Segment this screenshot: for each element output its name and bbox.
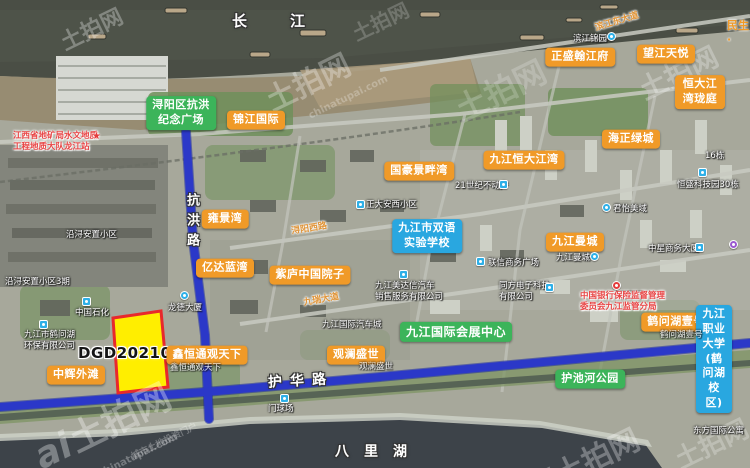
star-icon: ★	[92, 132, 101, 142]
poi-xinhengtong-small: 鑫恒通观天下	[170, 363, 221, 374]
poi-badge-huchihe-park: 护池河公园	[555, 370, 625, 389]
location-icon	[399, 270, 408, 279]
location-icon	[590, 252, 599, 261]
location-icon	[39, 320, 48, 329]
poi-mancheng-small: 九江曼城	[556, 253, 590, 264]
poi-junyi-meiyu: 君怡美域	[613, 204, 647, 215]
poi-yanxun-estate-3: 沿浔安置小区3期	[5, 277, 70, 288]
poi-guanlan-shengshi-small: 观澜盛世	[359, 362, 393, 373]
poi-badge-jiujiang-mancheng: 九江曼城	[546, 233, 604, 252]
poi-badge-yongjingwan: 雍景湾	[202, 210, 249, 229]
poi-longde-building: 龙德大厦	[168, 303, 202, 314]
gov-location-icon	[612, 281, 621, 290]
poi-zhongxing-business-tower: 中星商务大厦	[648, 244, 699, 255]
poi-dongfang-intl-apartment: 东方国际公寓	[693, 426, 744, 437]
poi-badge-yida-lanwan: 亿达蓝湾	[196, 259, 254, 278]
location-icon	[280, 394, 289, 403]
location-icon	[698, 168, 707, 177]
poi-hewenhu-yihao-small: 鹤问湖壹号	[660, 330, 703, 341]
poi-badge-zilu-china-courtyard: 紫庐中国院子	[270, 266, 351, 285]
poi-badge-kanghong-memorial-plaza: 浔阳区抗洪 纪念广场	[146, 96, 216, 130]
poi-badge-jiujiang-hengda-jiangwan: 九江恒大江湾	[484, 151, 565, 170]
location-icon	[607, 32, 616, 41]
poi-badge-xinhengtong-guantianxia: 鑫恒通观天下	[167, 346, 248, 365]
poi-badge-bilingual-school: 九江市双语 实验学校	[392, 219, 462, 253]
location-icon	[545, 283, 554, 292]
poi-badge-jinjiang-intl: 锦江国际	[227, 111, 285, 130]
location-icon	[356, 200, 365, 209]
poi-minsheng-partial: 民生·	[727, 19, 750, 47]
poi-sinopec: 中国石化	[75, 308, 109, 319]
poi-building16: 16栋	[705, 151, 724, 162]
poi-badge-guohao-jingpanwan: 国豪景畔湾	[384, 162, 454, 181]
poi-lianxin-business-plaza: 联信商务广场	[488, 258, 539, 269]
location-icon	[602, 203, 611, 212]
poi-cbirc-jiujiang: 中国银行保险监督管理 委员会九江监管分局	[580, 291, 665, 312]
poi-badge-haizheng-lvcheng: 海正绿城	[602, 130, 660, 149]
poi-badge-wangjiang-tianyue: 望江天悦	[637, 45, 695, 64]
poi-meidaxin-auto: 九江美达信汽车 销售服务有限公司	[375, 281, 443, 302]
location-icon	[82, 297, 91, 306]
poi-hengsheng-tech-park: 恒盛科技园30栋	[677, 180, 739, 191]
poi-badge-zhonghui-waitan: 中辉外滩	[47, 366, 105, 385]
kanghong-road-label: 抗洪路	[182, 193, 201, 253]
yangtze-river-label: 长江	[232, 10, 348, 31]
location-icon	[499, 180, 508, 189]
poi-yanxun-estate: 沿浔安置小区	[66, 230, 117, 241]
poi-badge-vocational-university: 九江职业大学 (鹤问湖校区)	[696, 305, 732, 413]
poi-gateball-court: 门球场	[268, 404, 294, 415]
location-icon	[729, 240, 738, 249]
poi-intl-auto-city: 九江国际汽车城	[322, 320, 382, 331]
bali-lake-label: 八里湖	[335, 441, 422, 461]
huhua-road-label: 护华路	[268, 368, 335, 391]
poi-tongfang-electronics: 同方电子科技 有限公司	[499, 281, 550, 302]
location-icon	[180, 291, 189, 300]
location-icon	[695, 243, 704, 252]
poi-badge-hengda-jiangwan-longting: 恒大江湾珑庭	[675, 75, 725, 109]
poi-badge-convention-center: 九江国际会展中心	[400, 322, 512, 342]
location-icon	[476, 257, 485, 266]
poi-binjiang-jinyuan: 滨江锦园	[573, 34, 607, 45]
poi-zhengda-anxi-estate: 正大安西小区	[366, 200, 417, 211]
satellite-map[interactable]: ai土拍网 chinatupai.com 城市土地投资门户 ai土拍网 土拍网 …	[0, 0, 750, 468]
poi-badge-zhengsheng-hanjiangfu: 正盛翰江府	[545, 48, 615, 67]
poi-geology-brigade: 江西省地矿局水文地质 工程地质大队龙江站	[13, 131, 98, 152]
poi-hewenhu-environment-co: 九江市鹤问湖 环保有限公司	[24, 330, 75, 351]
